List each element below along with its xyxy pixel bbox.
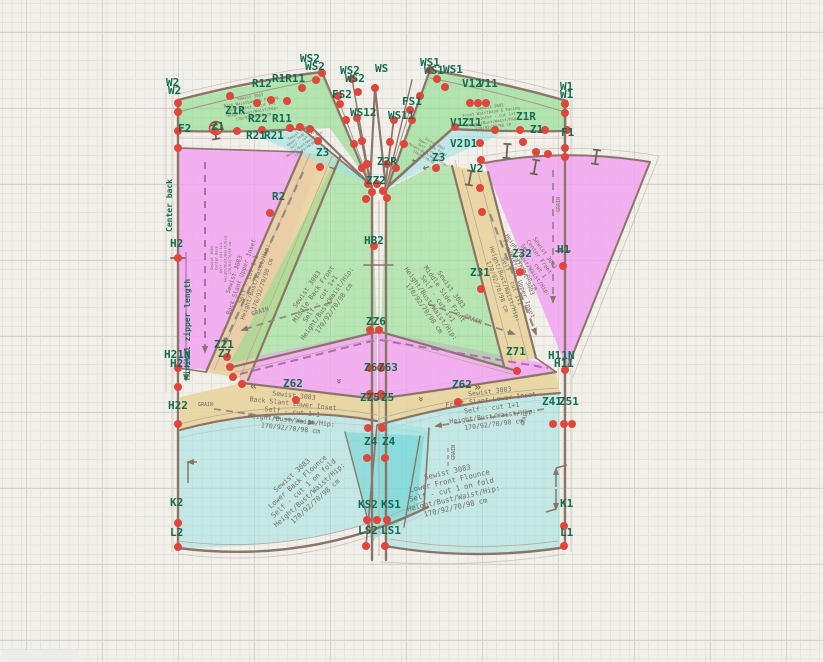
point-label[interactable]: V2 — [470, 162, 483, 175]
pattern-point[interactable] — [292, 396, 300, 404]
point-label[interactable]: H22 — [168, 399, 188, 412]
pattern-point[interactable] — [362, 542, 370, 550]
pattern-point[interactable] — [358, 137, 366, 145]
point-label[interactable]: GRAIN — [198, 402, 213, 408]
point-label[interactable]: Z2R — [377, 155, 397, 168]
pattern-point[interactable] — [466, 99, 474, 107]
horizontal-scrollbar-thumb[interactable] — [1, 650, 79, 662]
point-label[interactable]: R11 — [272, 112, 292, 125]
pattern-point[interactable] — [516, 268, 524, 276]
pattern-point[interactable] — [432, 164, 440, 172]
point-label[interactable]: R22 — [248, 112, 268, 125]
pattern-point[interactable] — [544, 150, 552, 158]
pattern-point[interactable] — [477, 285, 485, 293]
pattern-point[interactable] — [561, 144, 569, 152]
point-label[interactable]: R1R11 — [272, 72, 305, 85]
pattern-point[interactable] — [560, 420, 568, 428]
point-label[interactable]: Z32 — [512, 247, 532, 260]
pattern-point[interactable] — [368, 188, 376, 196]
point-label[interactable]: Z6 — [364, 361, 378, 374]
point-label[interactable]: V2 — [450, 137, 463, 150]
pattern-point[interactable] — [336, 100, 344, 108]
pattern-point[interactable] — [383, 194, 391, 202]
pattern-point[interactable] — [350, 140, 358, 148]
point-label[interactable]: Z63 — [378, 361, 398, 374]
pattern-canvas[interactable]: «»»»→←←Sewist 3083Back Waistband & Facin… — [0, 0, 823, 662]
pattern-point[interactable] — [174, 420, 182, 428]
point-label[interactable]: Z1 — [211, 120, 225, 133]
pattern-point[interactable] — [266, 209, 274, 217]
point-label[interactable]: W2 — [168, 84, 181, 97]
point-label[interactable]: F1 — [561, 126, 575, 139]
pattern-point[interactable] — [381, 454, 389, 462]
point-label[interactable]: H1 — [557, 243, 571, 256]
point-label[interactable]: KS1 — [381, 498, 401, 511]
point-label[interactable]: K2 — [170, 496, 183, 509]
point-label[interactable]: LS2 — [358, 524, 378, 537]
point-label[interactable]: FS2 — [332, 88, 352, 101]
pattern-point[interactable] — [379, 187, 387, 195]
pattern-point[interactable] — [174, 108, 182, 116]
pattern-point[interactable] — [233, 127, 241, 135]
point-label[interactable]: Z71 — [506, 345, 526, 358]
point-label[interactable]: Z3 — [432, 151, 445, 164]
pattern-point[interactable] — [253, 99, 261, 107]
point-label[interactable]: Minimal zipper length — [182, 279, 192, 380]
pattern-point[interactable] — [286, 124, 294, 132]
pattern-point[interactable] — [561, 153, 569, 161]
point-label[interactable]: H11 — [554, 357, 574, 370]
pattern-point[interactable] — [371, 84, 379, 92]
point-label[interactable]: Z11 — [462, 116, 482, 129]
pattern-point[interactable] — [476, 184, 484, 192]
pattern-point[interactable] — [454, 398, 462, 406]
point-label[interactable]: ZZ6 — [366, 315, 386, 328]
pattern-point[interactable] — [560, 542, 568, 550]
pattern-point[interactable] — [174, 254, 182, 262]
point-label[interactable]: Z3 — [316, 146, 329, 159]
pattern-point[interactable] — [342, 116, 350, 124]
point-label[interactable]: Z4 — [364, 435, 378, 448]
point-label[interactable]: L2 — [170, 526, 183, 539]
point-label[interactable]: KS2 — [358, 498, 378, 511]
pattern-point[interactable] — [559, 262, 567, 270]
point-label[interactable]: WS11 — [388, 109, 415, 122]
pattern-point[interactable] — [298, 84, 306, 92]
point-label[interactable]: R21 — [264, 129, 284, 142]
point-label[interactable]: WS2 — [345, 72, 365, 85]
point-label[interactable]: WS2 — [305, 60, 325, 73]
point-label[interactable]: R12 — [252, 77, 272, 90]
point-label[interactable]: LS1 — [381, 524, 401, 537]
direction-arrow-icon: « — [250, 379, 257, 393]
pattern-point[interactable] — [229, 373, 237, 381]
notch-ibeam-icon — [503, 144, 512, 159]
pattern-point[interactable] — [364, 424, 372, 432]
point-label[interactable]: Z62 — [452, 378, 472, 391]
point-label[interactable]: Z31 — [470, 266, 490, 279]
point-label[interactable]: R2 — [272, 190, 285, 203]
pattern-point[interactable] — [516, 126, 524, 134]
pattern-point[interactable] — [316, 163, 324, 171]
point-label[interactable]: WS — [375, 62, 388, 75]
pattern-svg: «»»»→←←Sewist 3083Back Waistband & Facin… — [0, 0, 823, 662]
point-label[interactable]: D1 — [464, 137, 478, 150]
point-label[interactable]: Z1R — [225, 104, 245, 117]
point-label[interactable]: Center back — [165, 179, 174, 232]
pattern-point[interactable] — [386, 138, 394, 146]
pattern-point[interactable] — [363, 516, 371, 524]
pattern-point[interactable] — [491, 126, 499, 134]
point-label[interactable]: WS12 — [350, 106, 377, 119]
pattern-point[interactable] — [441, 83, 449, 91]
point-label[interactable]: WS1 — [443, 63, 463, 76]
pattern-point[interactable] — [561, 100, 569, 108]
point-label[interactable]: Z62 — [283, 377, 303, 390]
pattern-point[interactable] — [363, 160, 371, 168]
pattern-point[interactable] — [532, 148, 540, 156]
point-label[interactable]: Z4 — [382, 435, 396, 448]
point-label[interactable]: Z5 — [381, 391, 394, 404]
pattern-point[interactable] — [226, 363, 234, 371]
pattern-point[interactable] — [174, 144, 182, 152]
point-label[interactable]: ZZ2 — [366, 174, 386, 187]
pattern-point[interactable] — [478, 208, 486, 216]
pattern-point[interactable] — [354, 88, 362, 96]
pattern-point[interactable] — [174, 543, 182, 551]
pattern-point[interactable] — [549, 420, 557, 428]
pattern-point[interactable] — [383, 516, 391, 524]
point-label[interactable]: H2 — [170, 237, 183, 250]
pattern-point[interactable] — [519, 138, 527, 146]
direction-arrow-icon: » — [333, 378, 344, 384]
pattern-point[interactable] — [561, 109, 569, 117]
pattern-point[interactable] — [378, 424, 386, 432]
pattern-point[interactable] — [474, 99, 482, 107]
point-label[interactable]: V11 — [478, 77, 498, 90]
pattern-point[interactable] — [312, 76, 320, 84]
pattern-point[interactable] — [174, 99, 182, 107]
pattern-point[interactable] — [568, 420, 576, 428]
pattern-point[interactable] — [362, 195, 370, 203]
direction-arrow-icon: ← — [412, 156, 418, 166]
point-label[interactable]: ZZ5 — [360, 391, 380, 404]
direction-arrow-icon: » — [415, 396, 426, 402]
pattern-point[interactable] — [482, 99, 490, 107]
pattern-point[interactable] — [267, 96, 275, 104]
point-label[interactable]: FS1 — [402, 95, 422, 108]
point-label[interactable]: GRAIN — [556, 197, 562, 212]
point-label[interactable]: K1 — [560, 497, 574, 510]
point-label[interactable]: HB2 — [364, 234, 384, 247]
pattern-point[interactable] — [400, 140, 408, 148]
point-label[interactable]: W1 — [560, 88, 574, 101]
point-label[interactable]: Z1R — [516, 110, 536, 123]
point-label[interactable]: GRAIN — [451, 445, 457, 460]
pattern-point[interactable] — [513, 367, 521, 375]
pattern-point[interactable] — [373, 516, 381, 524]
pattern-point[interactable] — [226, 92, 234, 100]
pattern-point[interactable] — [238, 380, 246, 388]
point-label[interactable]: WS1 — [424, 64, 444, 77]
point-label[interactable]: Z1 — [530, 123, 544, 136]
pattern-point[interactable] — [363, 454, 371, 462]
point-label[interactable]: L1 — [560, 526, 574, 539]
point-label[interactable]: F2 — [178, 122, 191, 135]
point-label[interactable]: Z51 — [559, 395, 579, 408]
pattern-point[interactable] — [381, 542, 389, 550]
pattern-point[interactable] — [306, 125, 314, 133]
pattern-point[interactable] — [283, 97, 291, 105]
pattern-point[interactable] — [314, 137, 322, 145]
pattern-point[interactable] — [296, 123, 304, 131]
point-label[interactable]: Z7 — [218, 347, 231, 360]
pattern-point[interactable] — [174, 383, 182, 391]
